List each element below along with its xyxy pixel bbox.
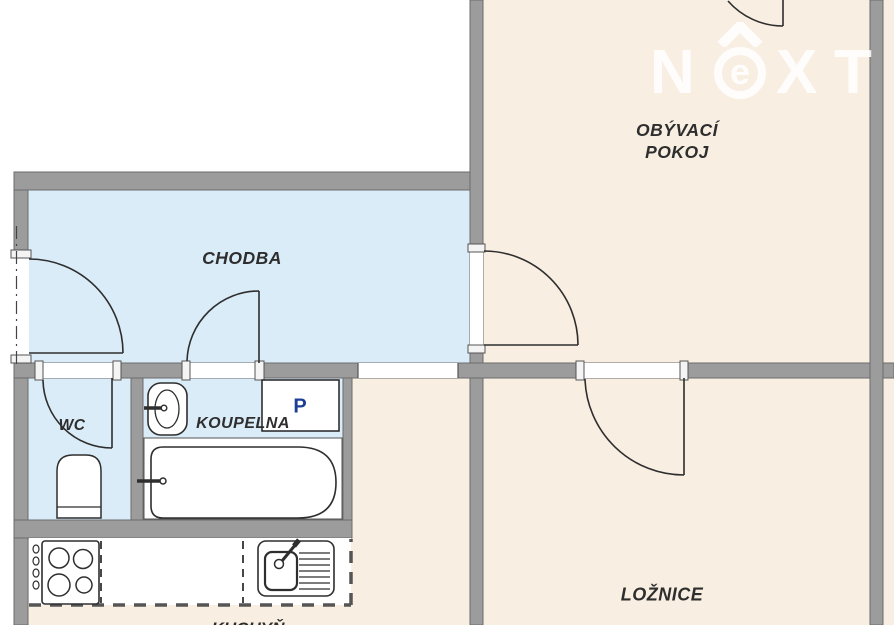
kitchen-fixtures [29,538,351,605]
kitchen-sink-basin [265,552,297,590]
wc-door-opening [43,363,113,378]
wall-bathroom-right [343,378,352,520]
bedroom-jamb-right [680,361,688,380]
wall-right-outer [870,0,883,625]
entrance-jamb-bottom [11,355,31,363]
bedroom-jamb-left [576,361,584,380]
bathtub [151,447,336,518]
outside-right-strip [883,0,894,625]
wc-jamb-right [113,361,121,380]
kitchen-passage-opening [358,363,458,378]
kitchen-label: KUCHYŇ [212,619,285,625]
livingroom-door-opening [470,252,483,345]
stove-knob [33,545,39,553]
bathroom-jamb-left [182,361,190,380]
floor-plan-drawing [0,0,894,625]
bathroom-label: KOUPELNA [196,415,290,433]
wc-fixtures [57,455,101,518]
living-room-label: OBÝVACÍ POKOJ [636,119,718,163]
living-room-floor [483,0,870,363]
stove-knob [33,581,39,589]
wall-bathroom-bottom [14,520,352,538]
wall-left-outer [14,172,28,625]
entrance-jamb-top [11,250,31,258]
livingroom-jamb-bottom [468,345,485,353]
wall-wc-bathroom-divider [131,378,143,520]
bedroom-door-opening [584,363,680,378]
toilet [57,455,101,518]
stove-knob [33,569,39,577]
kitchen-sink-drainboard [299,553,330,589]
floor-plan: OBÝVACÍ POKOJ CHODBA WC KOUPELNA LOŽNICE… [0,0,894,625]
bathroom-door-opening [190,363,255,378]
wc-jamb-left [35,361,43,380]
livingroom-jamb-top [468,244,485,252]
hallway-label: CHODBA [202,247,282,269]
stove [42,541,99,604]
wc-label: WC [59,417,86,435]
washing-machine-label: P [293,396,306,419]
living-room-label-line2: POKOJ [636,141,718,163]
washbasin-tap-knob [161,405,167,411]
wall-kitchen-bedroom-divider [470,378,483,625]
bathtub-tap-knob [160,478,166,484]
wall-hallway-top [14,172,470,190]
hallway-floor [28,190,470,363]
bathroom-jamb-right [255,361,264,380]
living-room-label-line1: OBÝVACÍ [636,119,718,141]
bedroom-label: LOŽNICE [621,585,704,606]
entrance-opening [13,258,29,355]
stove-knob [33,557,39,565]
